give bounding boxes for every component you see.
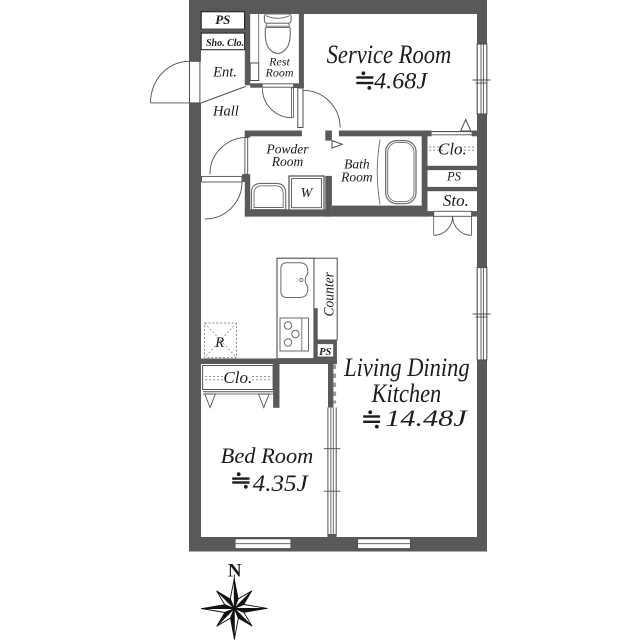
svg-text:Bed Room: Bed Room <box>221 443 314 468</box>
svg-text:W: W <box>301 186 314 201</box>
svg-text:Living Dining: Living Dining <box>343 353 469 382</box>
svg-text:Sto.: Sto. <box>443 191 469 210</box>
svg-text:PS: PS <box>446 170 462 184</box>
svg-text:Kitchen: Kitchen <box>371 379 441 408</box>
svg-text:R: R <box>214 335 224 351</box>
svg-text:Room: Room <box>340 169 373 184</box>
svg-text:Hall: Hall <box>212 104 239 120</box>
svg-text:Clo.: Clo. <box>223 368 252 387</box>
svg-text:4.68J: 4.68J <box>374 69 429 94</box>
svg-text:Clo.: Clo. <box>438 140 467 159</box>
svg-text:PS: PS <box>215 12 230 27</box>
svg-text:Counter: Counter <box>321 272 337 317</box>
svg-text:Service Room: Service Room <box>327 40 452 69</box>
svg-text:Ent.: Ent. <box>212 64 237 80</box>
svg-text:PS: PS <box>319 347 331 358</box>
svg-text:Room: Room <box>265 66 294 80</box>
svg-text:Room: Room <box>271 154 304 169</box>
svg-text:N: N <box>228 560 242 581</box>
svg-text:14.48J: 14.48J <box>385 406 469 431</box>
svg-text:Sho. Clo.: Sho. Clo. <box>206 38 244 49</box>
svg-text:4.35J: 4.35J <box>253 471 310 496</box>
